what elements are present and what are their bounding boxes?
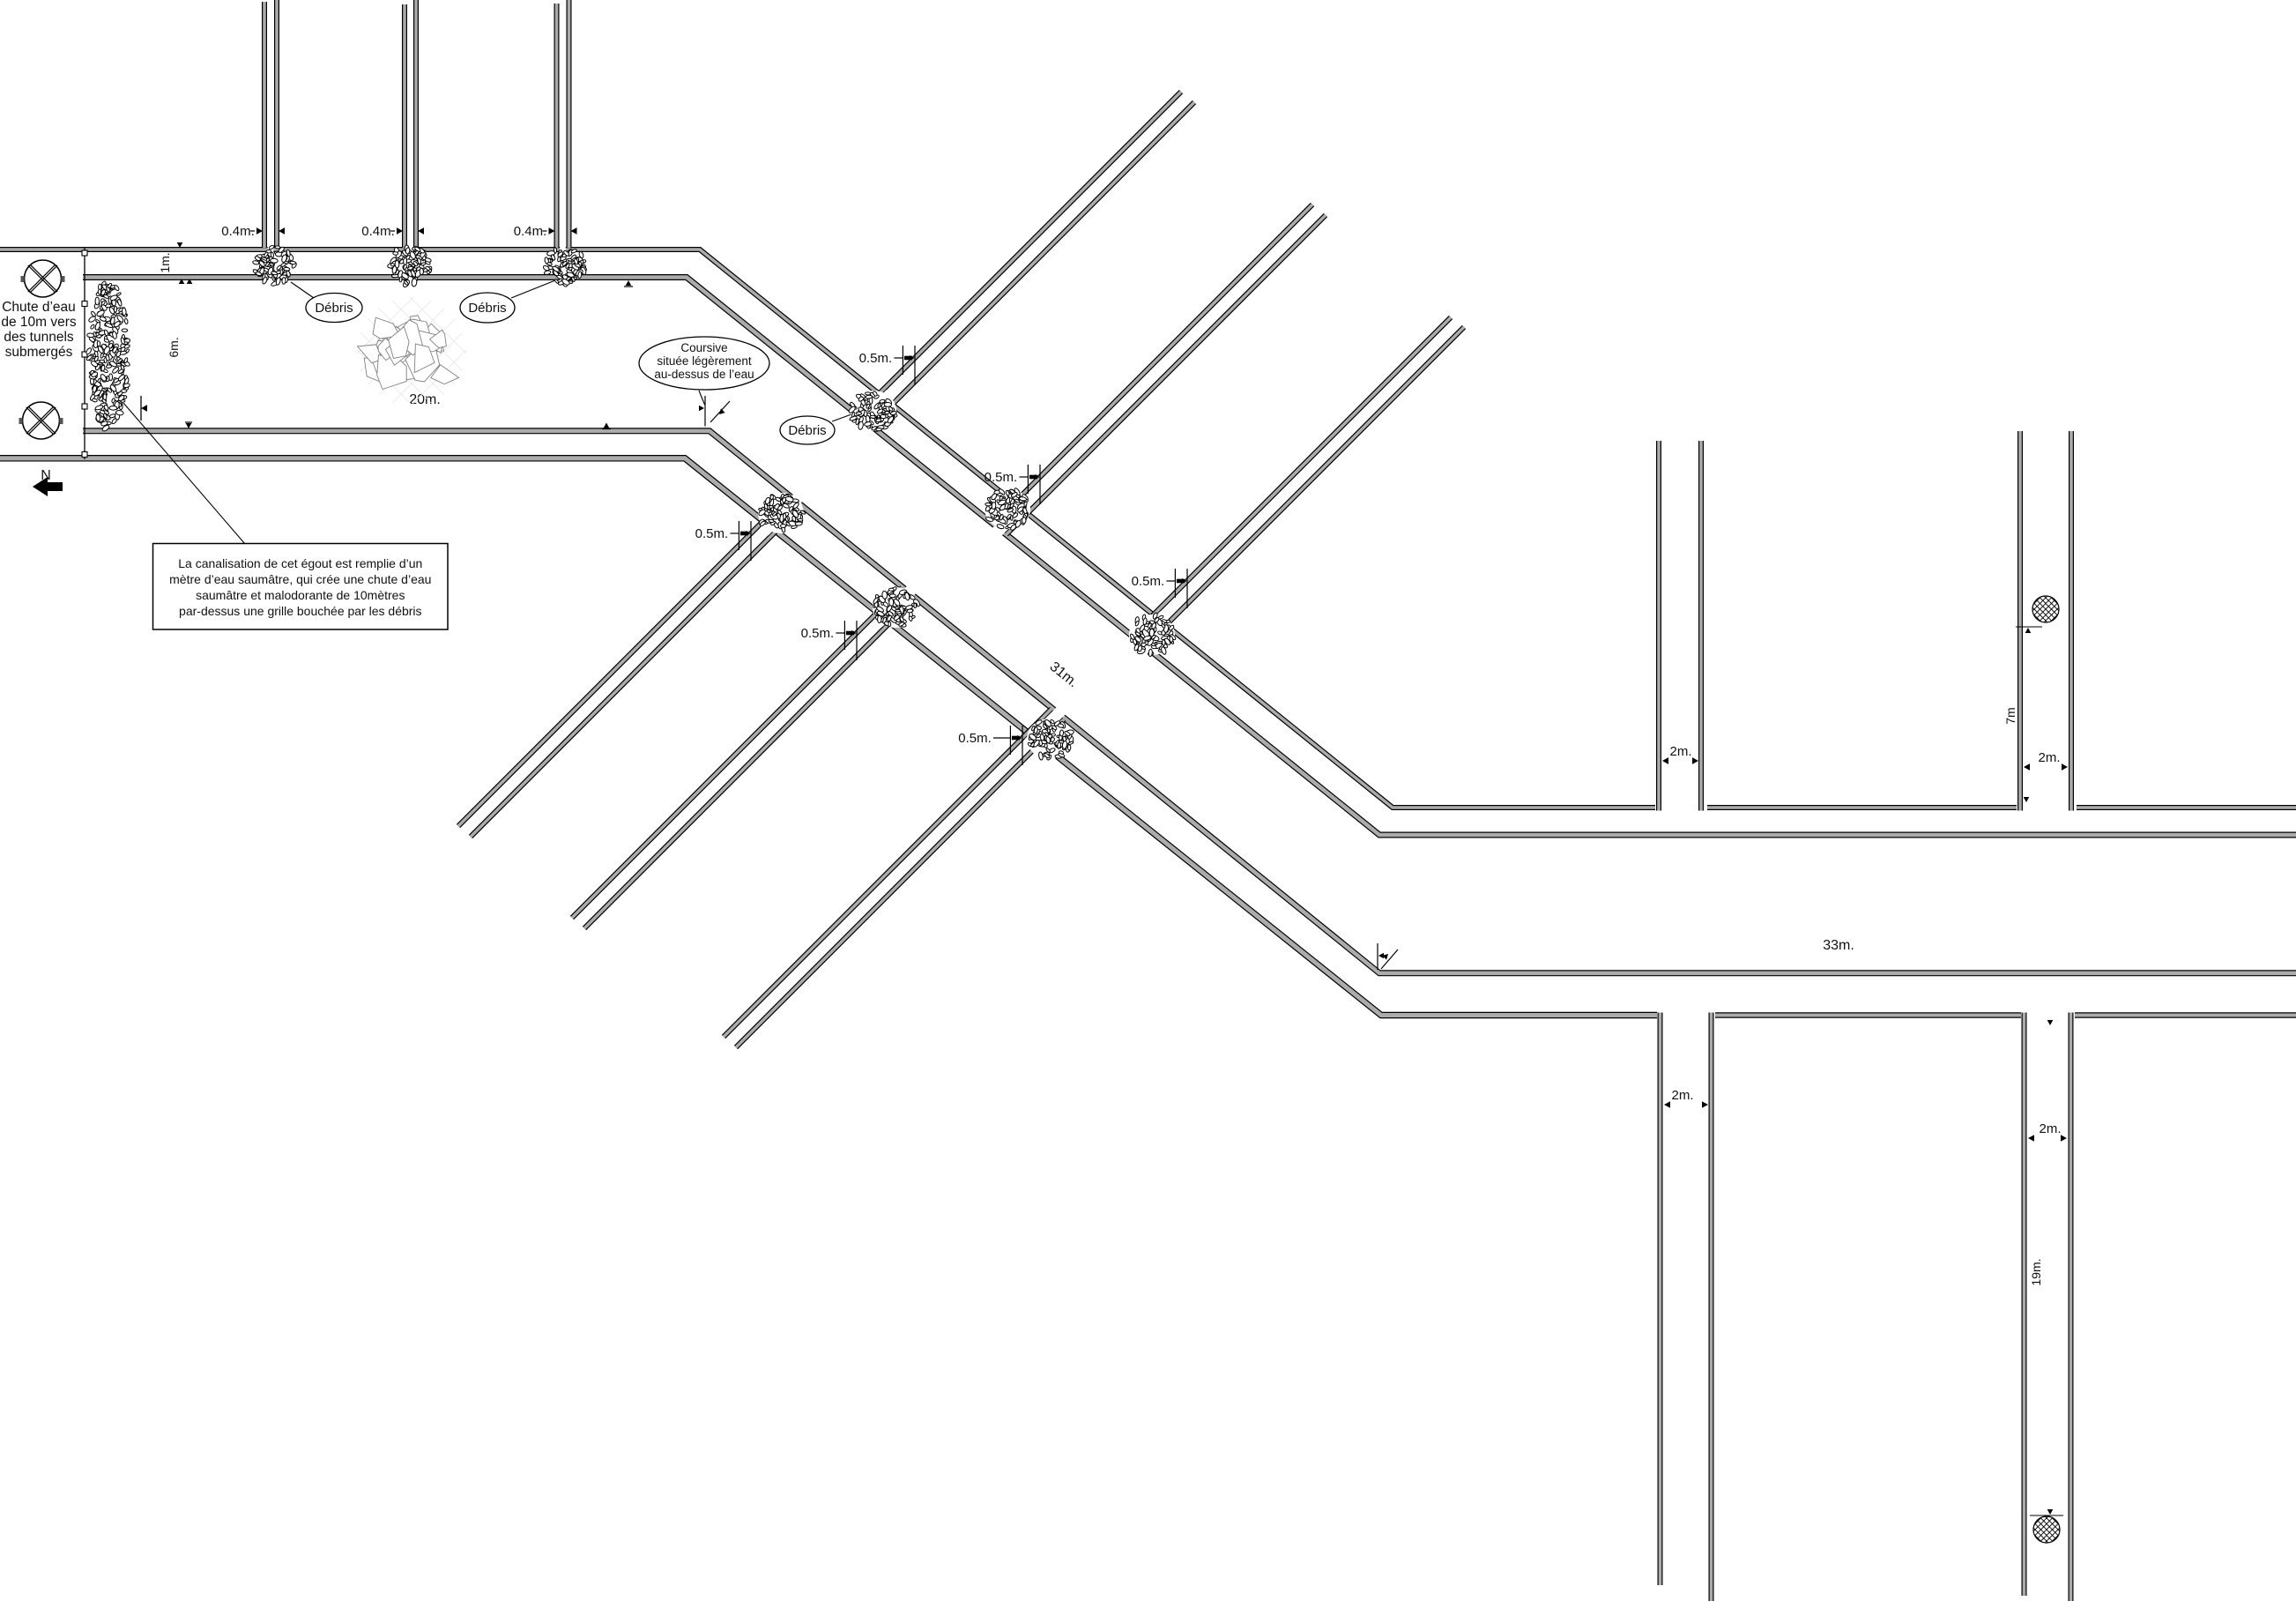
svg-text:La canalisation de cet égout e: La canalisation de cet égout est remplie… (178, 556, 422, 570)
svg-text:20m.: 20m. (409, 392, 441, 407)
svg-text:2m.: 2m. (2039, 1121, 2061, 1136)
svg-text:Débris: Débris (468, 301, 506, 316)
svg-text:submergés: submergés (5, 345, 73, 360)
svg-text:des tunnels: des tunnels (4, 330, 74, 345)
svg-text:au-dessus de l’eau: au-dessus de l’eau (654, 368, 754, 381)
svg-text:0.4m.: 0.4m. (514, 224, 547, 239)
svg-text:Coursive: Coursive (680, 341, 727, 354)
svg-text:de 10m vers: de 10m vers (1, 315, 77, 330)
svg-text:0.4m.: 0.4m. (361, 224, 395, 239)
svg-text:0.5m.: 0.5m. (801, 626, 835, 641)
svg-text:mètre d’eau saumâtre, qui crée: mètre d’eau saumâtre, qui crée une chute… (169, 572, 431, 586)
svg-text:1m.: 1m. (158, 252, 172, 272)
svg-text:0.5m.: 0.5m. (985, 470, 1018, 485)
svg-text:7m: 7m (2003, 707, 2017, 724)
svg-text:située légèrement: située légèrement (657, 354, 752, 368)
svg-text:par-dessus une grille bouchée: par-dessus une grille bouchée par les dé… (179, 604, 422, 618)
svg-text:0.5m.: 0.5m. (1132, 574, 1165, 589)
svg-text:0.5m.: 0.5m. (859, 351, 893, 366)
svg-text:Débris: Débris (315, 301, 353, 316)
svg-text:0.5m.: 0.5m. (958, 731, 992, 746)
svg-text:Chute d’eau: Chute d’eau (2, 300, 76, 315)
svg-text:2m.: 2m. (1671, 1088, 1693, 1103)
svg-text:6m.: 6m. (167, 337, 181, 357)
svg-text:2m.: 2m. (1669, 744, 1691, 759)
svg-text:33m.: 33m. (1823, 938, 1854, 953)
svg-text:0.5m.: 0.5m. (695, 526, 729, 541)
svg-text:Débris: Débris (788, 423, 826, 438)
svg-text:0.4m.: 0.4m. (221, 224, 255, 239)
svg-text:saumâtre et malodorante de 10m: saumâtre et malodorante de 10mètres (196, 588, 405, 602)
svg-text:2m.: 2m. (2038, 750, 2060, 765)
svg-text:19m.: 19m. (2029, 1258, 2043, 1285)
